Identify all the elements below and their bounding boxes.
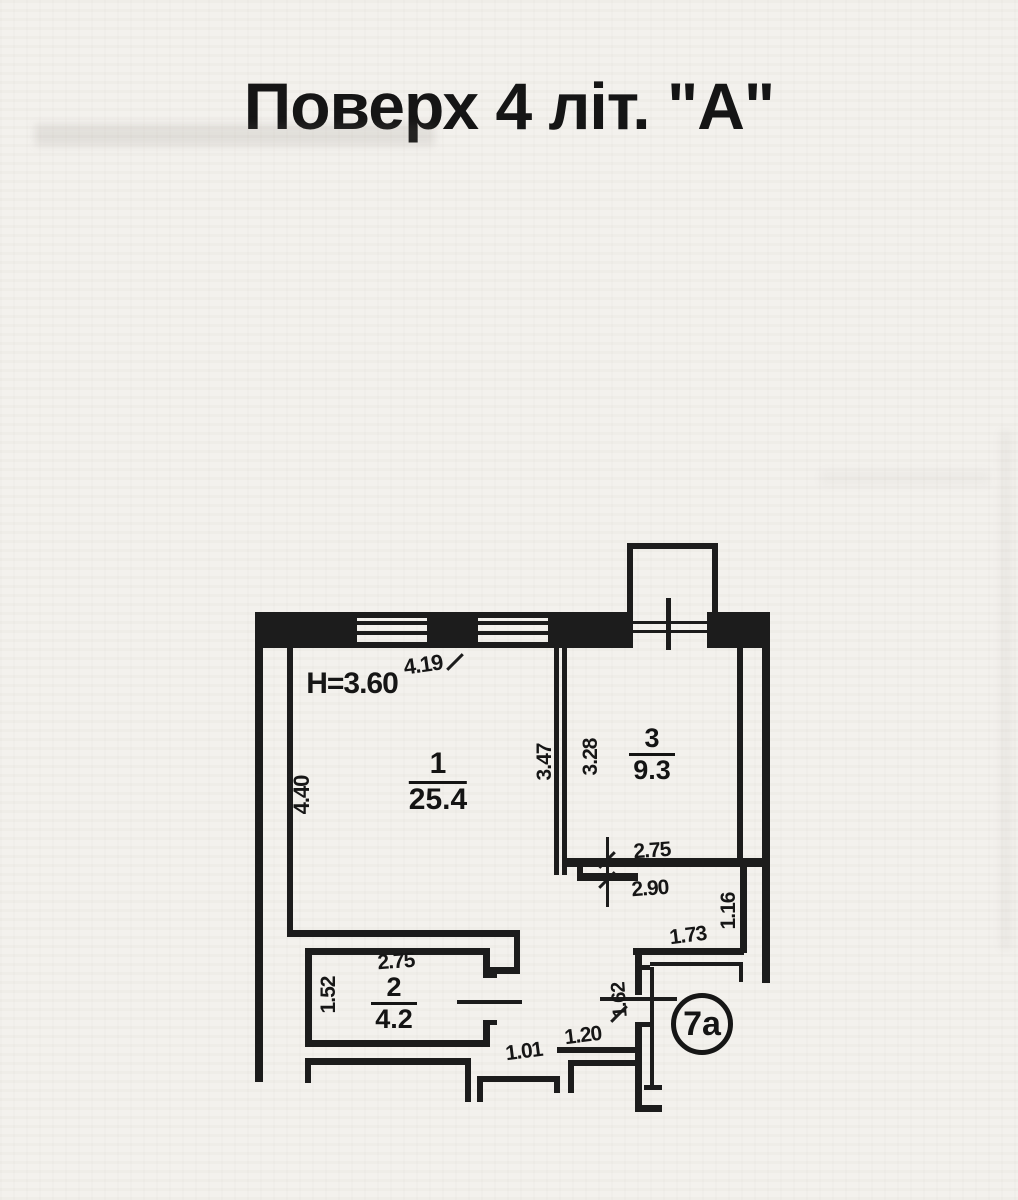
room-number: 2 bbox=[371, 973, 417, 1005]
room-label: 125.4 bbox=[409, 748, 467, 815]
plan-line bbox=[644, 1085, 662, 1090]
room-area: 25.4 bbox=[409, 784, 467, 816]
plan-line bbox=[650, 967, 654, 1087]
plan-line bbox=[633, 630, 707, 633]
room-number: 1 bbox=[409, 748, 467, 784]
wall-segment bbox=[707, 612, 770, 648]
wall-segment bbox=[562, 648, 567, 875]
room-area: 9.3 bbox=[633, 756, 671, 784]
window-glazing-line bbox=[357, 631, 427, 635]
wall-segment bbox=[287, 930, 520, 937]
dimension-label: 2.75 bbox=[633, 838, 671, 865]
dimension-label: 3.28 bbox=[579, 739, 603, 776]
dimension-label: 1.20 bbox=[563, 1022, 603, 1050]
room-area: 4.2 bbox=[375, 1005, 413, 1033]
wall-segment bbox=[666, 598, 671, 650]
scan-smudge bbox=[1000, 430, 1012, 950]
apartment-number-badge: 7а bbox=[671, 993, 733, 1055]
wall-segment bbox=[635, 1105, 662, 1112]
wall-segment bbox=[427, 612, 478, 648]
wall-segment bbox=[548, 612, 633, 648]
wall-segment bbox=[255, 612, 263, 1082]
dimension-label: 3.47 bbox=[533, 744, 557, 781]
window-frame bbox=[478, 642, 548, 648]
dimension-label: 4.40 bbox=[289, 776, 315, 815]
plan-line bbox=[633, 621, 707, 624]
window-frame bbox=[357, 612, 427, 618]
wall-segment bbox=[712, 543, 718, 617]
window-frame bbox=[357, 642, 427, 648]
plan-line bbox=[650, 962, 743, 966]
wall-segment bbox=[483, 1020, 497, 1025]
wall-segment bbox=[635, 965, 650, 970]
plan-line bbox=[606, 837, 609, 907]
room-label: 39.3 bbox=[629, 724, 675, 785]
window-glazing-line bbox=[478, 631, 548, 635]
wall-segment bbox=[737, 648, 743, 858]
window-glazing-line bbox=[478, 621, 548, 625]
room-label: 24.2 bbox=[371, 973, 417, 1034]
wall-segment bbox=[568, 1060, 635, 1066]
wall-segment bbox=[554, 1076, 560, 1093]
wall-segment bbox=[305, 948, 312, 1047]
dimension-label: 1.52 bbox=[317, 977, 341, 1014]
dimension-label: 4.19 bbox=[402, 649, 444, 680]
wall-segment bbox=[305, 1058, 311, 1083]
scan-smudge bbox=[35, 124, 435, 146]
wall-segment bbox=[465, 1058, 471, 1102]
wall-segment bbox=[305, 1058, 471, 1065]
wall-segment bbox=[477, 1076, 560, 1082]
dimension-tick bbox=[446, 653, 464, 671]
wall-segment bbox=[255, 612, 357, 648]
dimension-label: 1.01 bbox=[504, 1038, 544, 1066]
dimension-label: 1.73 bbox=[668, 922, 708, 950]
dimension-label: 2.90 bbox=[631, 876, 669, 903]
plan-line bbox=[739, 962, 743, 982]
dimension-label: 1.16 bbox=[717, 893, 741, 930]
wall-segment bbox=[635, 948, 642, 995]
scan-smudge bbox=[820, 470, 990, 486]
window-glazing-line bbox=[357, 621, 427, 625]
room-number: 3 bbox=[629, 724, 675, 756]
wall-segment bbox=[762, 612, 770, 983]
dimension-label: H=3.60 bbox=[306, 667, 398, 701]
plan-line bbox=[457, 1000, 522, 1004]
wall-segment bbox=[305, 1040, 490, 1047]
scanned-floor-plan-page: Поверх 4 літ. "А" H=3.604.194.403.473.28… bbox=[0, 0, 1018, 1200]
wall-segment bbox=[633, 948, 744, 955]
window-frame bbox=[478, 612, 548, 618]
wall-segment bbox=[627, 543, 633, 617]
dimension-label: 1.62 bbox=[607, 982, 632, 1018]
wall-segment bbox=[635, 1022, 642, 1112]
wall-segment bbox=[740, 867, 747, 953]
wall-segment bbox=[635, 1022, 650, 1027]
wall-segment bbox=[568, 1060, 574, 1093]
wall-segment bbox=[483, 973, 497, 978]
wall-segment bbox=[627, 543, 718, 549]
